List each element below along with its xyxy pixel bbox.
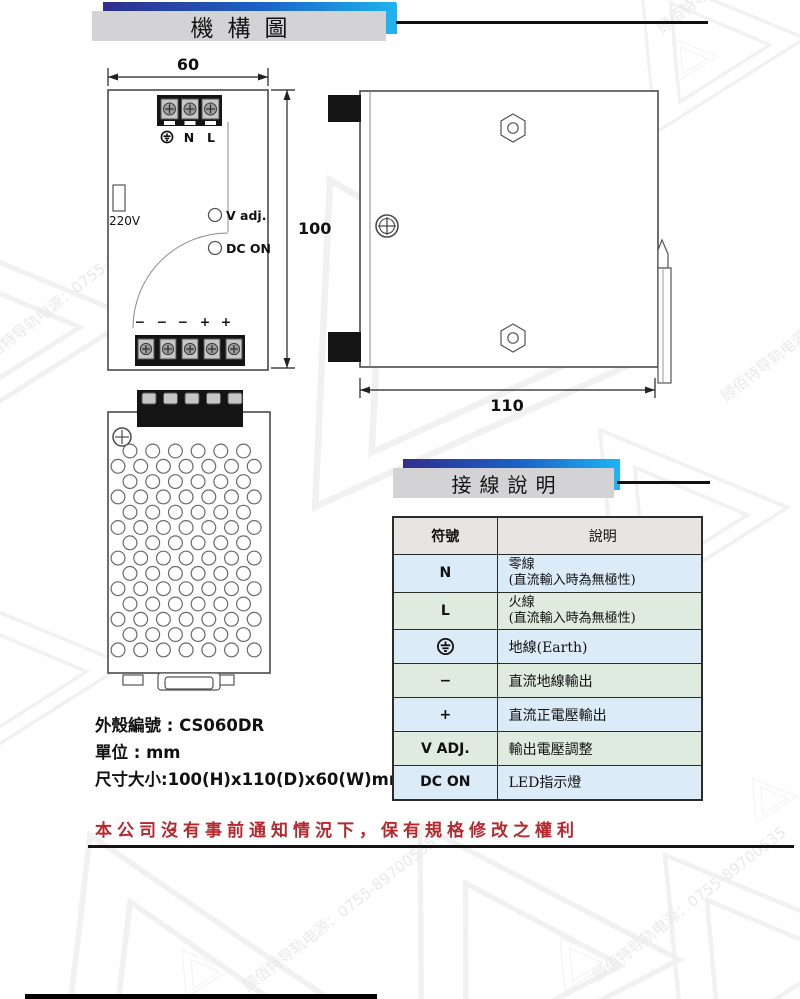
terminal-block-side (328, 332, 361, 362)
mount-foot (123, 675, 143, 685)
case-screw (376, 215, 398, 237)
table-row: 地線(Earth) (393, 630, 702, 664)
desc-line: (直流輸入時為無極性) (509, 573, 697, 589)
case-number: 外殼編號 : CS060DR (95, 712, 406, 739)
wiring-description-title: 接線說明 (393, 468, 614, 498)
table-header-row: 符號 說明 (393, 517, 702, 555)
v-adj-potentiometer (209, 209, 222, 222)
polarity-label: + (221, 314, 231, 329)
terminal-screw (182, 99, 199, 119)
col-header-symbol: 符號 (393, 517, 497, 555)
disclaimer-rule (88, 845, 794, 848)
earth-icon (436, 637, 455, 656)
voltage-label: 220V (109, 214, 141, 228)
symbol-l: L (393, 592, 497, 630)
banner-rule (396, 21, 708, 24)
table-row: DC ON LED指示燈 (393, 766, 702, 800)
voltage-selector-switch (113, 185, 125, 211)
case-info: 外殼編號 : CS060DR 單位 : mm 尺寸大小:100(H)x110(D… (95, 712, 406, 793)
dim-depth-label: 110 (490, 396, 523, 415)
arrowhead (284, 90, 291, 100)
table-row: N 零線 (直流輸入時為無極性) (393, 555, 702, 593)
terminal-screw (202, 99, 219, 119)
line-label: L (207, 130, 215, 145)
dc-on-led (209, 242, 222, 255)
dim-width-label: 60 (177, 55, 199, 74)
rail-slider (158, 673, 220, 690)
din-rail-clip (658, 240, 671, 383)
arrowhead (284, 358, 291, 368)
watermark-triangle (32, 835, 369, 999)
terminal-slot (205, 121, 216, 125)
output-terminal-block (135, 335, 245, 366)
table-row: − 直流地線輸出 (393, 664, 702, 698)
polarity-label: − (157, 314, 167, 329)
desc-l: 火線 (直流輸入時為無極性) (497, 592, 702, 630)
table-row: + 直流正電壓輸出 (393, 698, 702, 732)
desc-line: (直流輸入時為無極性) (509, 611, 697, 627)
terminal-screw (204, 339, 220, 359)
unit-note: 單位 : mm (95, 739, 406, 766)
terminal-screw (182, 339, 198, 359)
symbol-minus: − (393, 664, 497, 698)
arrowhead (360, 387, 370, 394)
table-row: V ADJ. 輸出電壓調整 (393, 732, 702, 766)
terminal-screw (138, 339, 154, 359)
arrowhead (645, 387, 655, 394)
watermark-triangle (752, 778, 797, 822)
terminal-screw (160, 339, 176, 359)
desc-line: 零線 (509, 557, 697, 573)
desc-n: 零線 (直流輸入時為無極性) (497, 555, 702, 593)
arrowhead (108, 74, 118, 81)
wiring-table: 符號 說明 N 零線 (直流輸入時為無極性) L 火線 (直流輸入時為無極性) (392, 516, 703, 801)
terminal-screw (226, 339, 242, 359)
dimensions-note: 尺寸大小:100(H)x110(D)x60(W)mm (95, 766, 406, 793)
polarity-label: + (200, 314, 210, 329)
desc-line: 火線 (509, 595, 697, 611)
watermark-triangle (397, 825, 689, 999)
col-header-desc: 說明 (497, 517, 702, 555)
arrowhead (258, 74, 268, 81)
symbol-n: N (393, 555, 497, 593)
desc-earth: 地線(Earth) (497, 630, 702, 664)
symbol-v-adj: V ADJ. (393, 732, 497, 766)
desc-dc-on: LED指示燈 (497, 766, 702, 800)
neutral-label: N (184, 130, 194, 145)
terminal-screw (161, 99, 178, 119)
datasheet-page: { "banners": { "mechanical": "機構圖", "wir… (0, 0, 800, 999)
mechanical-diagram-title: 機構圖 (92, 11, 386, 41)
polarity-label: − (178, 314, 188, 329)
symbol-dc-on: DC ON (393, 766, 497, 800)
terminal-block-top (137, 390, 243, 427)
terminal-slot (185, 121, 196, 125)
front-view-drawing: 60 N L 220V (85, 50, 335, 390)
polarity-label: − (135, 314, 145, 329)
v-adj-label: V adj. (226, 208, 266, 223)
terminal-block-side (328, 95, 361, 122)
side-view-drawing: 110 (325, 78, 690, 423)
dc-on-label: DC ON (226, 241, 271, 256)
desc-minus: 直流地線輸出 (497, 664, 702, 698)
disclaimer-text: 本公司沒有事前通知情況下，保有規格修改之權利 (95, 816, 579, 841)
case-screw (113, 428, 131, 446)
vented-cover-drawing (95, 388, 320, 703)
symbol-earth (393, 630, 497, 664)
table-row: L 火線 (直流輸入時為無極性) (393, 592, 702, 630)
terminal-slot (164, 121, 175, 125)
symbol-plus: + (393, 698, 497, 732)
input-terminal-block (157, 95, 222, 126)
watermark-text: 顾佰特导轨电源：0755-89700535 (239, 833, 439, 995)
bottom-edge-bar (25, 994, 377, 999)
desc-plus: 直流正電壓輸出 (497, 698, 702, 732)
desc-v-adj: 輸出電壓調整 (497, 732, 702, 766)
watermark-text: 顾佰特导轨电源：0755-89700535 (717, 243, 800, 405)
banner-rule (617, 481, 710, 484)
